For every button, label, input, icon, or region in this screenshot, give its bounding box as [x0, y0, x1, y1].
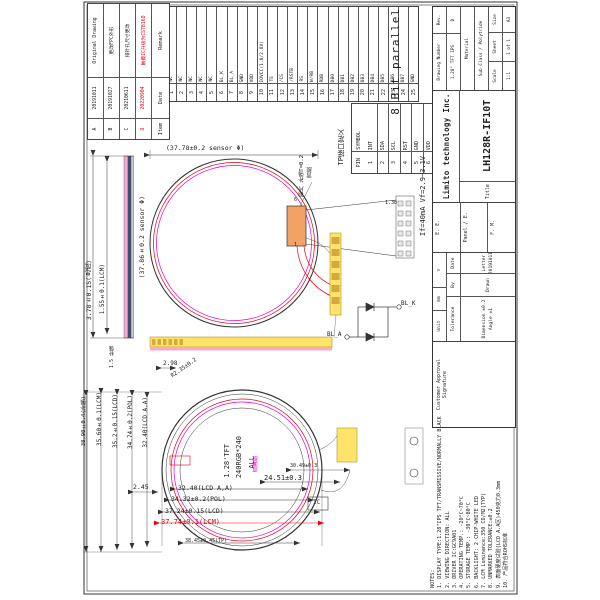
revision-table: A20191011Original DrawingB20191027更改FPC外…	[87, 3, 170, 140]
model-number: LH128R-IF10T	[460, 91, 515, 182]
dimension-label: If=40mA Vf=2.9~3.1V	[420, 156, 427, 236]
note-line: 6. BACKLIGHT: 2 CHIP-WHITE LED	[474, 430, 481, 588]
pin-column: BL_A7	[227, 7, 237, 101]
revision-date: 20210611	[120, 78, 135, 119]
approval-fm: F. M.	[487, 203, 515, 252]
pin-number: 12	[280, 89, 286, 95]
revision-date: 20191027	[104, 78, 119, 119]
dimension-label: 37.74±0.1(LCM)	[161, 519, 220, 526]
pin-column: NC5	[206, 7, 216, 101]
pin-description: DB3	[361, 74, 366, 82]
revision-item: D	[136, 119, 151, 139]
fpc-connector	[287, 206, 306, 246]
unit-label: Unit	[433, 311, 446, 341]
pin-description: GND	[240, 74, 245, 82]
pin-column: RDB16	[317, 7, 327, 101]
pin-column: DB017	[328, 7, 338, 101]
dimension-label: 34.74±0.2(POL)	[128, 395, 134, 449]
drawing-sheet: DESCRIPTION PIN NC1NC2NC3NC4NC5BL_K6BL_A…	[0, 0, 600, 600]
pin-description: /CS	[280, 74, 285, 82]
pin-description: DB5	[381, 74, 386, 82]
pin-column: DB320	[358, 7, 368, 101]
note-line: 4. OPERATING TEMP.: -20°C~70°C	[459, 430, 466, 588]
pin-number: 17	[330, 89, 336, 95]
pin-description: RDB	[320, 74, 325, 82]
scale-label: Scale	[489, 62, 502, 90]
dimension-label: BL_A	[327, 332, 341, 338]
revision-row: B20191027更改FPC外形	[103, 4, 119, 139]
note-line: 5. STORAGE TEMP.: -30°C~80°C	[466, 430, 473, 588]
drawn-date: 20191011	[489, 253, 494, 274]
drawn-by: Letter	[482, 255, 487, 272]
tp-pin-number: 2	[380, 161, 386, 164]
pin-column: DB421	[368, 7, 378, 101]
drawing-number-value: 1.28" TFT IPS	[447, 34, 460, 90]
symbol-header-label: SYMBOL	[356, 131, 362, 150]
unit-value: mm	[433, 288, 446, 311]
company-name: Limito technology Inc.	[433, 91, 459, 202]
pin-number: 25	[411, 89, 417, 95]
dimension-label: (37.78±0.2 sensor Φ)	[166, 145, 244, 152]
pin-column: W/RB15	[307, 7, 317, 101]
pin-description: GND	[411, 74, 416, 82]
note-line: 8. UNMARKED TOLERANCE:±0.2	[488, 430, 495, 588]
size-value: A3	[503, 7, 515, 33]
pin-column: VDD9	[247, 7, 257, 101]
pin-column: NC2	[176, 7, 186, 101]
tp-table-header: SYMBOL PIN	[352, 104, 366, 173]
pin-number: 11	[269, 89, 275, 95]
approval-ee: E. E.	[433, 203, 460, 252]
dimension-label: 30.49±0.3	[290, 464, 317, 469]
revision-row: C20210611排针孔尺寸更改	[119, 4, 135, 139]
pin-description: DB1	[341, 74, 346, 82]
pin-description: RS	[300, 76, 305, 82]
dimension-label: 35.60±0.1(LCM)	[97, 392, 103, 446]
note-line: 10. 产品符合ROHS标准	[503, 430, 510, 588]
sheet-label: Sheet	[489, 33, 502, 62]
rev-label: Rev.	[433, 7, 446, 34]
pin-column: DB118	[338, 7, 348, 101]
pin-description: VDD	[250, 74, 255, 82]
title-block-wrap: Customer Approval Signature Unit mm ▽ To…	[432, 6, 516, 428]
pin-column: BL_K6	[216, 7, 226, 101]
pin-number: 14	[300, 89, 306, 95]
dimension-label: 背胶	[308, 167, 314, 178]
tp-pin-symbol: GND	[414, 141, 420, 150]
dimension-label: 1.55±0.1(LCM)	[100, 264, 106, 314]
material-label: Material	[461, 7, 474, 90]
pin-description: NC	[189, 76, 194, 82]
dimension-label: 32.40(LCD A.A)	[143, 397, 149, 448]
backlight-led-circuit	[345, 303, 401, 341]
pin-column: NC3	[186, 7, 196, 101]
revision-remark: 排针孔尺寸更改	[120, 4, 135, 78]
tp-pin-symbol: VDD	[426, 141, 432, 150]
pin-column: /RSTB13	[287, 7, 297, 101]
note-line: 1. DISPLAY TYPE:1.28"IPS TFT/TRANSMISSIV…	[437, 430, 444, 588]
note-line: 9. 表面硬度试验(LCD A.A区)450克力0.3mm	[496, 430, 503, 588]
pin-column: /CS12	[277, 7, 287, 101]
note-line: NOTES:	[430, 430, 437, 588]
pin-description: W/RB	[310, 71, 315, 82]
rev-value: D	[447, 7, 460, 34]
dimension-label: 6	[294, 198, 297, 203]
dimension-label: TP接口定义	[338, 129, 345, 165]
sub-class-label: Sub Class / Polytride	[475, 7, 488, 90]
note-line: 7. LCM Luminance:350 CD/M2(TYP)	[481, 430, 488, 588]
dimension-label: IC	[313, 500, 320, 506]
pin-column: GND25	[408, 7, 418, 101]
dimension-label: 35.2±0.15(LCD)	[113, 394, 119, 448]
pin-number: 8	[239, 91, 245, 94]
tp-pin-symbol: RST	[403, 141, 409, 150]
pin-column: DB522	[378, 7, 388, 101]
dimension-label: BL_K	[401, 301, 415, 307]
revision-header-row: ItemDateRemark	[151, 4, 169, 139]
dimension-label: ALL	[249, 456, 256, 469]
pin-description: BL_A	[230, 71, 235, 82]
dimension-tolerance-value: ±0.2	[482, 300, 487, 311]
by-label: By	[447, 274, 460, 297]
pin-description: IOVCC(1.8/2.8V)	[260, 41, 265, 83]
drawing-number-label: Drawing Number	[433, 34, 446, 90]
revision-item: B	[104, 119, 119, 139]
pin-description: DB7	[401, 74, 406, 82]
pin-number: 10	[259, 89, 265, 95]
led-diode-icon	[366, 333, 374, 341]
revision-header: Remark	[152, 4, 169, 78]
revision-table-wrap: A20191011Original DrawingB20191027更改FPC外…	[87, 3, 170, 140]
revision-remark: Original Drawing	[88, 4, 103, 78]
revision-remark: 更改FPC外形	[104, 4, 119, 78]
tp-pin-column: SDA2	[377, 104, 389, 173]
pin-column: NC4	[196, 7, 206, 101]
title-label: Title	[460, 182, 515, 202]
tp-pin-symbol: SDA	[380, 141, 386, 150]
approval-panel: Panel / E.	[460, 203, 488, 252]
pin-description: DB4	[371, 74, 376, 82]
dimension-label: 2.98	[163, 361, 177, 367]
tolerance-label: Tolerance	[447, 297, 460, 341]
pin-number: 2	[179, 91, 185, 94]
revision-header: Date	[152, 78, 169, 119]
revision-date: 20191011	[88, 78, 103, 119]
angle-tolerance-label: Angle	[489, 316, 494, 330]
dimension-label: 钢片 补强T=0.2	[300, 155, 306, 197]
pin-description: DB0	[331, 74, 336, 82]
revision-header: Item	[152, 119, 169, 139]
pin-number: 3	[189, 91, 195, 94]
pin-description: /RSTB	[290, 68, 295, 82]
dimension-label: 38.45±0.45(TP)	[185, 539, 227, 544]
customer-approval-label: Customer Approval Signature	[436, 355, 448, 415]
dimension-tolerance-label: Dimension	[482, 314, 487, 339]
pin-description: TE	[270, 76, 275, 82]
note-line: 3. DRIVER IC:GC9A01	[452, 430, 459, 588]
notes-block: NOTES:1. DISPLAY TYPE:1.28"IPS TFT/TRANS…	[430, 430, 510, 588]
dimension-label: 32.40(LCD A,A)	[178, 485, 233, 492]
pin-description: NC	[209, 76, 214, 82]
pin-number: 21	[370, 89, 376, 95]
title-block: Customer Approval Signature Unit mm ▽ To…	[432, 6, 516, 428]
pin-column: DB219	[348, 7, 358, 101]
sheet-value: 1 of 1	[503, 33, 515, 62]
notes-block-wrap: NOTES:1. DISPLAY TYPE:1.28"IPS TFT/TRANS…	[430, 430, 510, 588]
dimension-label: 24.51±0.3	[264, 475, 302, 482]
dimension-label: 1	[294, 243, 297, 248]
pin-column: IOVCC(1.8/2.8V)10	[257, 7, 267, 101]
dimension-label: 1.30	[385, 201, 397, 206]
size-label: Size	[489, 7, 502, 33]
led-diode-icon	[366, 303, 374, 311]
dimension-label: 1.28'TFT	[224, 444, 231, 478]
revision-row: D20220904触摸IC升级为CST816D	[135, 4, 151, 139]
revision-item: C	[120, 119, 135, 139]
pin-column: TE11	[267, 7, 277, 101]
drawn-label: Drawn	[461, 274, 515, 297]
pin-column: GND8	[237, 7, 247, 101]
revision-row: A20191011Original Drawing	[88, 4, 103, 139]
tp-pin-header-label: PIN	[356, 158, 362, 167]
dimension-label: 38.90±0.4(补强)	[82, 396, 88, 446]
pin-number: 4	[199, 91, 205, 94]
pin-number: 16	[320, 89, 326, 95]
scale-value: 1:1	[503, 62, 515, 90]
pin-columns: NC1NC2NC3NC4NC5BL_K6BL_A7GND8VDD9IOVCC(1…	[167, 7, 418, 101]
tp-pin-column: INT1	[366, 104, 377, 173]
pin-description: BL_K	[220, 71, 225, 82]
pin-number: 6	[219, 91, 225, 94]
stack-side-view	[90, 156, 134, 338]
pin-number: 15	[310, 89, 316, 95]
pin-number: 9	[249, 91, 255, 94]
dimension-label: 1.5 补强	[110, 346, 115, 368]
pin-number: 7	[229, 91, 235, 94]
revision-item: A	[88, 119, 103, 139]
dimension-label: 2.45	[133, 484, 149, 491]
dimension-label: 37.24±0.15(LCD)	[165, 508, 224, 515]
date-label: Date	[447, 253, 460, 274]
pin-number: 20	[360, 89, 366, 95]
bus-width-label: 8 Bit parallel	[390, 8, 402, 115]
dimension-label: 240RGB*240	[236, 436, 243, 478]
silkscreen-mark	[170, 456, 190, 465]
tp-pin-symbol: INT	[368, 141, 374, 150]
pin-description: NC	[179, 76, 184, 82]
pin-number: 22	[381, 89, 387, 95]
pin-description-table: DESCRIPTION PIN NC1NC2NC3NC4NC5BL_K6BL_A…	[151, 6, 419, 102]
dimension-label: (37.86±0.2 sensor Φ)	[139, 196, 146, 278]
pin-number: 5	[209, 91, 215, 94]
note-line: 2. VIEWING DIRECTION: ALL	[445, 430, 452, 588]
pin-number: 24	[401, 89, 407, 95]
tail-connector	[337, 428, 357, 462]
pin-column: RS14	[297, 7, 307, 101]
pin-number: 19	[350, 89, 356, 95]
pin-number: 18	[340, 89, 346, 95]
dimension-label: 3.78±0.15(总成)	[86, 260, 93, 320]
dimension-label: 34.32±0.2(POL)	[171, 496, 226, 503]
tp-pin-number: 1	[368, 161, 374, 164]
angle-tolerance-value: ±1	[489, 308, 494, 314]
tp-pin-symbol: SCL	[391, 141, 397, 150]
revision-date: 20220904	[136, 78, 151, 119]
pin-number: 13	[290, 89, 296, 95]
pin-description: NC	[199, 76, 204, 82]
revision-remark: 触摸IC升级为CST816D	[136, 4, 151, 78]
tp-pin-number: 3	[391, 161, 397, 164]
roughness-symbol: ▽	[433, 253, 446, 288]
tp-pin-number: 4	[403, 161, 409, 164]
pin-description: DB2	[351, 74, 356, 82]
